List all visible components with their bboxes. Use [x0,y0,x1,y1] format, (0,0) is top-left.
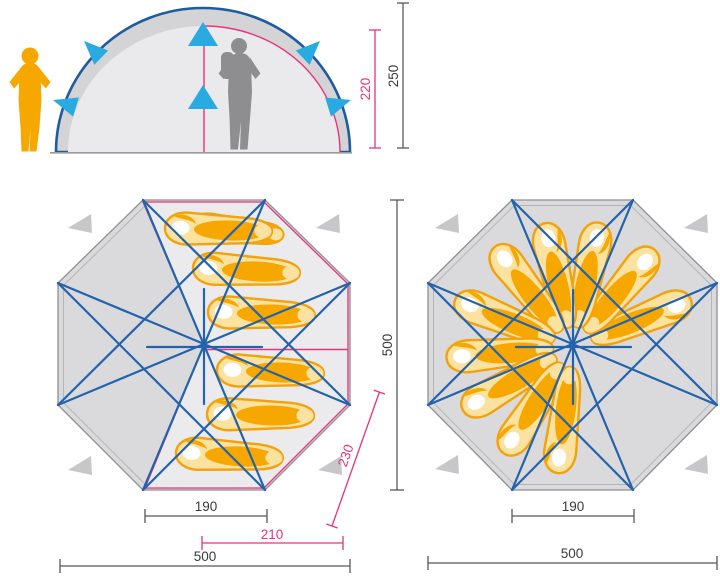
guy-peg-icon [684,214,708,233]
floor-plan-right: 190 500 [428,200,717,570]
inner-width-left-label: 190 [195,499,218,514]
floor-plan-left: 190 210 500 230 [58,200,385,573]
guy-peg-icon [68,456,92,475]
dimension-overall-depth: 500 [380,200,404,490]
overall-depth-label: 500 [380,334,395,357]
inner-width-right-label: 190 [562,499,585,514]
tent-spec-diagram: 220 250 [0,0,720,576]
guy-peg-icon [316,214,340,233]
inner-height-label: 220 [358,78,373,101]
dimension-inner-width-right: 190 [512,499,634,523]
guy-peg-icon [435,214,459,233]
diagram-svg: 220 250 [0,0,720,576]
side-elevation-view: 220 250 [10,3,410,153]
sleeping-bag [207,398,315,432]
overall-width-right-label: 500 [561,546,584,561]
dimension-outer-height: 250 [386,3,409,148]
person-scale-icon [10,48,51,152]
dimension-door-width: 210 [202,527,343,550]
guy-peg-icon [68,214,92,233]
guy-peg-icon [435,455,459,474]
dimension-inner-width-left: 190 [145,499,267,523]
door-width-label: 210 [261,527,284,542]
overall-width-left-label: 500 [194,549,217,564]
dimension-overall-width-left: 500 [60,549,350,573]
dimension-overall-width-right: 500 [428,546,717,570]
dimension-inner-height: 220 [358,30,381,148]
outer-height-label: 250 [386,65,401,88]
guy-peg-icon [684,455,708,474]
